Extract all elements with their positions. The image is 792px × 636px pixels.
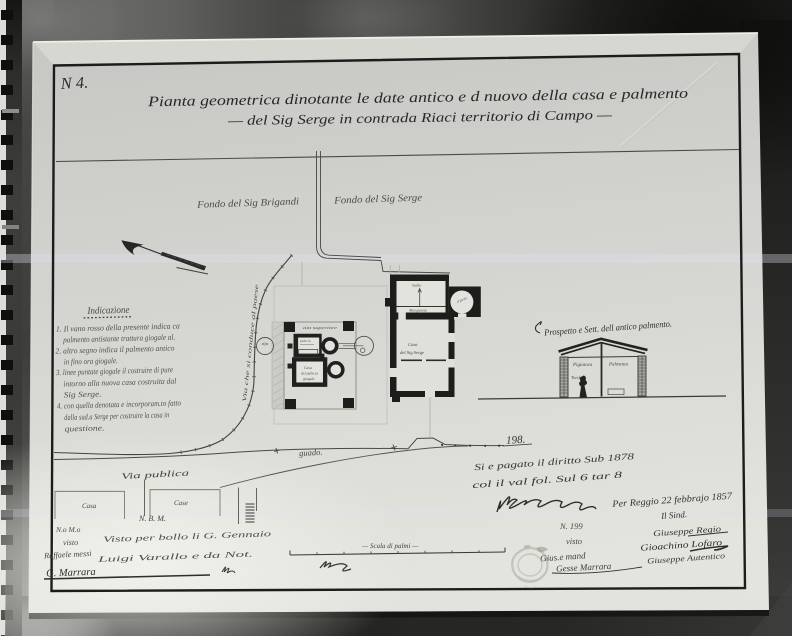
svg-text:del palm.to: del palm.to [301, 372, 318, 376]
svg-text:giogale: giogale [303, 377, 315, 381]
svg-text:N. B. M.: N. B. M. [138, 514, 166, 523]
svg-text:Palmento: Palmento [608, 362, 629, 368]
svg-text:Casa: Casa [82, 502, 97, 510]
svg-text:questione.: questione. [64, 423, 104, 433]
svg-text:Il Sind.: Il Sind. [660, 509, 688, 521]
svg-text:Mangiatoia: Mangiatoia [408, 309, 427, 313]
svg-text:— Scala di palmi —: — Scala di palmi — [361, 542, 419, 550]
svg-text:Case: Case [174, 499, 188, 507]
svg-text:N.o M.o: N.o M.o [55, 525, 81, 534]
svg-text:Indicazione: Indicazione [86, 305, 130, 317]
svg-text:visto: visto [63, 538, 78, 547]
svg-text:Stalla: Stalla [412, 284, 421, 288]
svg-text:N. 199: N. 199 [559, 521, 583, 531]
svg-text:del Sig Serge: del Sig Serge [400, 350, 424, 355]
svg-text:in fino ora giogale.: in fino ora giogale. [64, 356, 118, 366]
svg-text:aia superiore: aia superiore [303, 325, 337, 330]
svg-text:Pigiatora: Pigiatora [572, 362, 593, 368]
svg-text:Casa: Casa [408, 342, 418, 347]
svg-text:visto: visto [566, 536, 582, 546]
svg-text:palm.to: palm.to [299, 339, 311, 343]
svg-text:N 4.: N 4. [59, 73, 88, 93]
svg-text:Sig Serge.: Sig Serge. [64, 389, 102, 399]
svg-text:Casa: Casa [304, 366, 312, 370]
svg-text:guado.: guado. [299, 447, 323, 458]
